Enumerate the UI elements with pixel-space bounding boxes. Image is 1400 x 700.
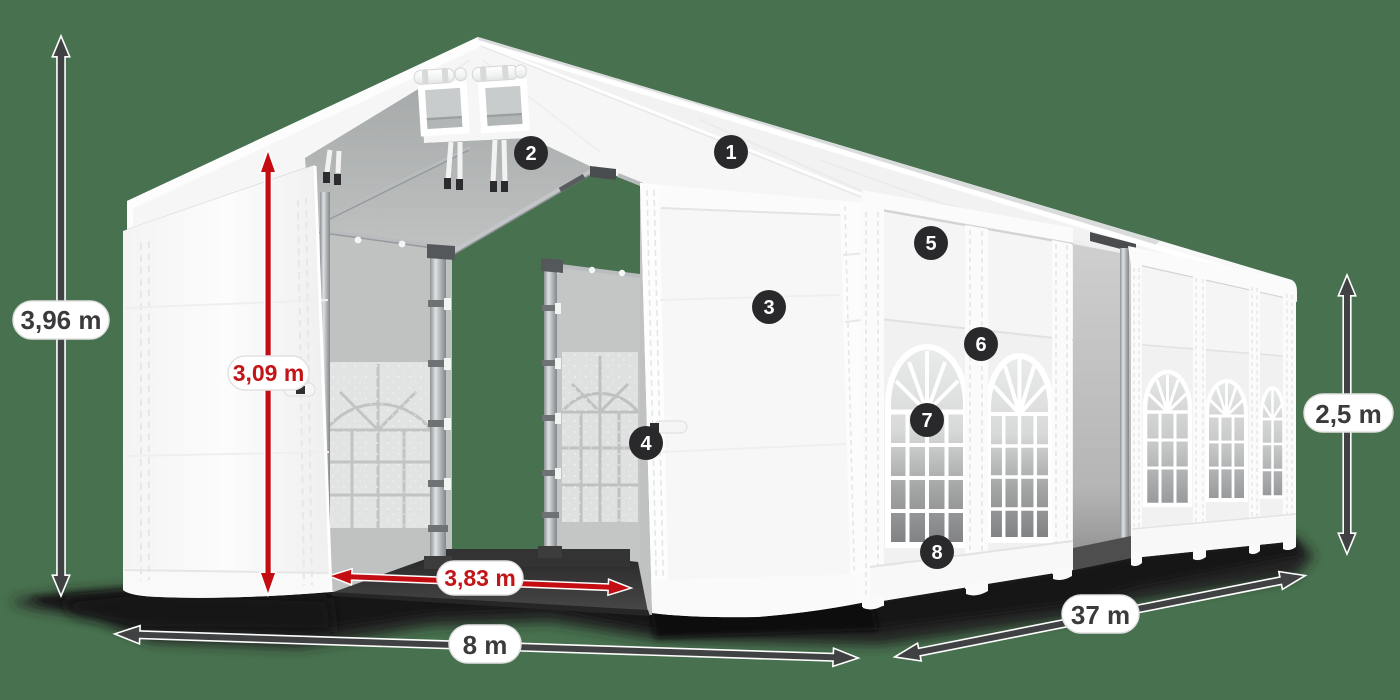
svg-text:3: 3 (763, 297, 774, 319)
svg-text:6: 6 (975, 334, 986, 356)
svg-text:8: 8 (931, 542, 942, 564)
svg-text:3,96 m: 3,96 m (21, 305, 102, 335)
svg-text:5: 5 (925, 233, 936, 255)
svg-text:2: 2 (525, 143, 536, 165)
svg-text:7: 7 (921, 410, 932, 432)
svg-text:8 m: 8 m (463, 630, 508, 660)
svg-text:37 m: 37 m (1071, 600, 1130, 630)
svg-text:3,83 m: 3,83 m (444, 565, 516, 591)
svg-text:2,5 m: 2,5 m (1315, 399, 1382, 429)
svg-text:4: 4 (640, 433, 652, 455)
svg-text:1: 1 (725, 142, 736, 164)
svg-text:3,09 m: 3,09 m (233, 360, 305, 386)
